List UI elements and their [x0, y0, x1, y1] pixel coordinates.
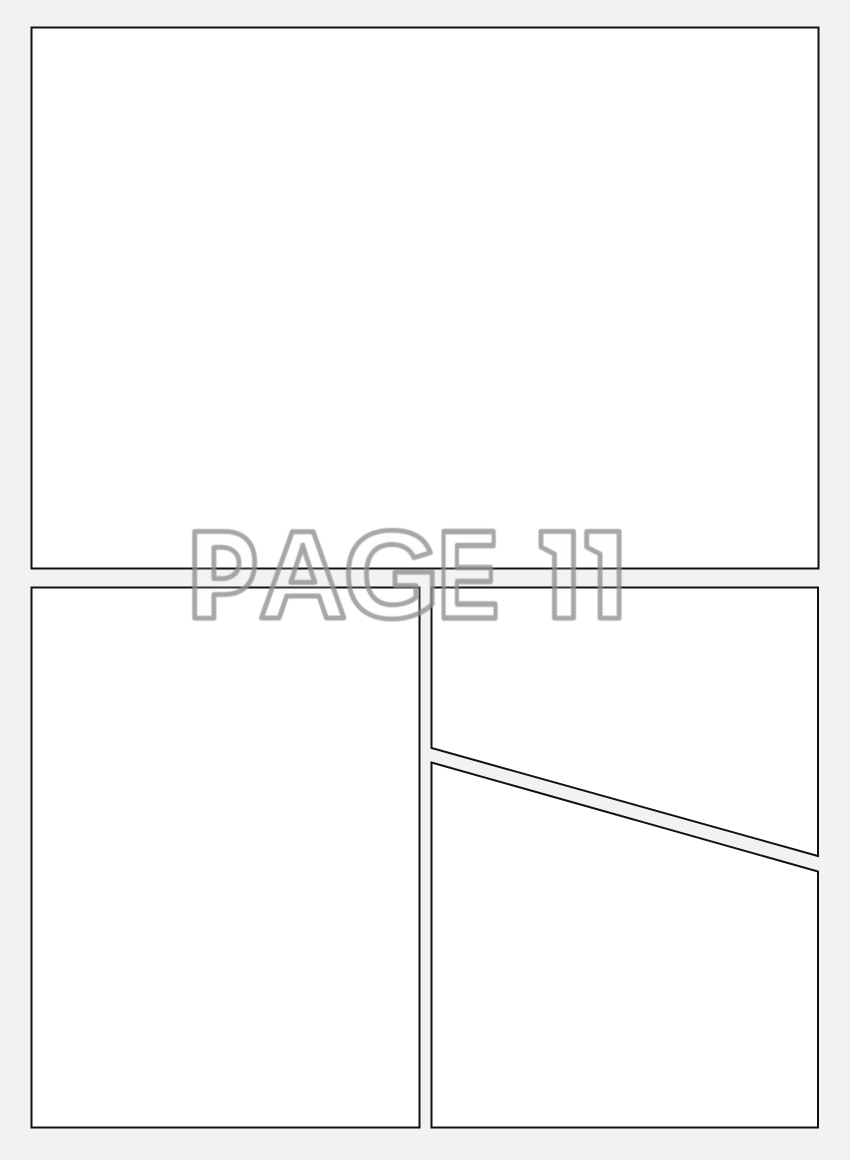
svg-text:G: G: [343, 506, 440, 645]
svg-text:E: E: [437, 506, 499, 646]
svg-text:A: A: [258, 506, 347, 645]
